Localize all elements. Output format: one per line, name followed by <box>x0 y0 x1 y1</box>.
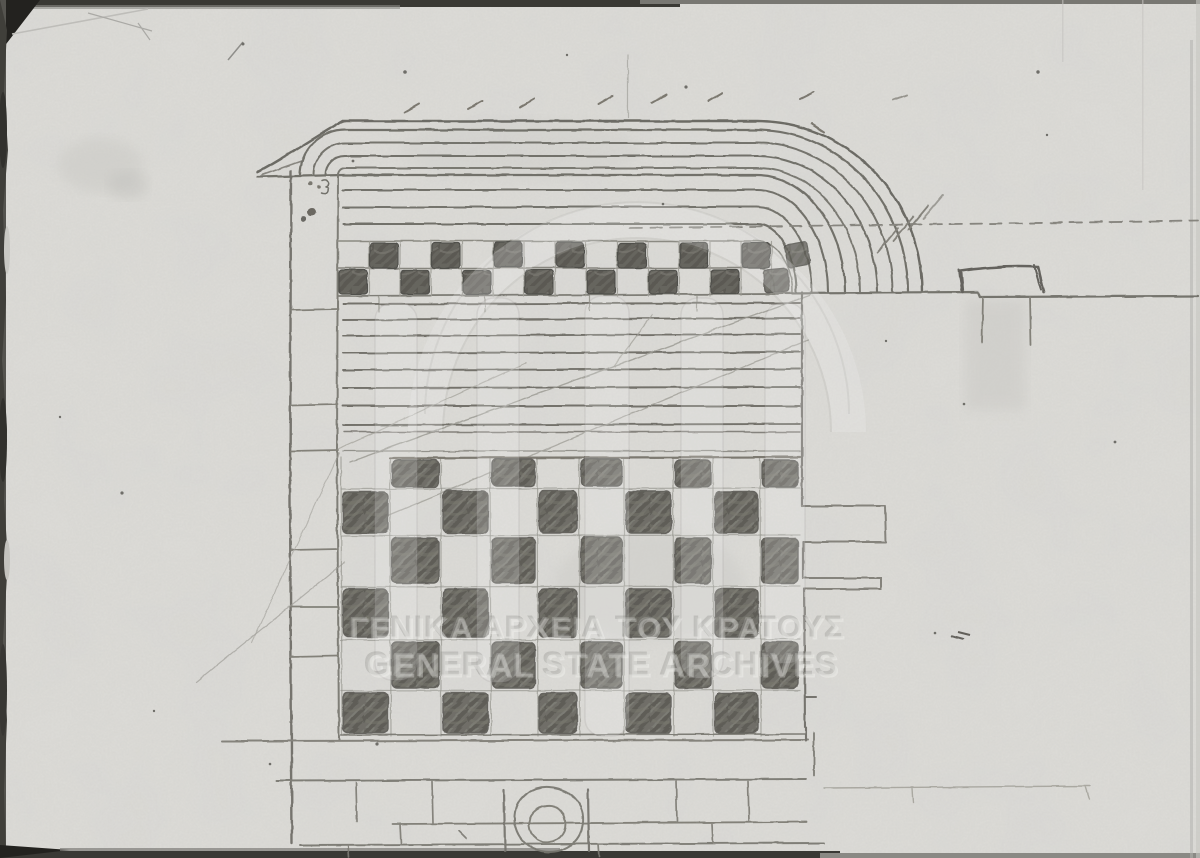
svg-text:ΓΕΝΙΚΑ ΑΡΧΕΙΑ ΤΟΥ ΚΡΑΤΟΥΣ: ΓΕΝΙΚΑ ΑΡΧΕΙΑ ΤΟΥ ΚΡΑΤΟΥΣ <box>349 610 845 645</box>
svg-text:GENERAL STATE ARCHIVES: GENERAL STATE ARCHIVES <box>365 646 839 683</box>
